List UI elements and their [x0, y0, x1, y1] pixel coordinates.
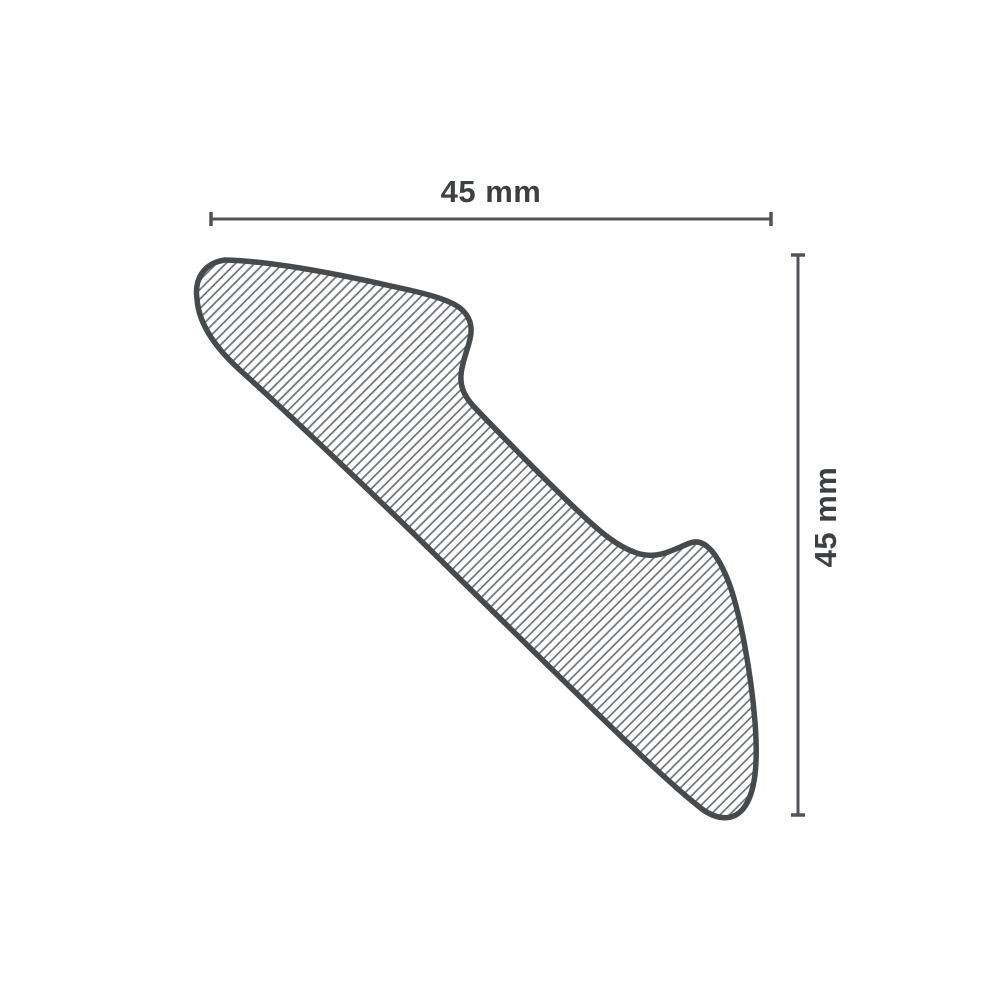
diagram-canvas: 45 mm 45 mm	[0, 0, 1000, 1000]
horizontal-dimension-line	[211, 212, 771, 226]
height-dimension-label: 45 mm	[808, 467, 844, 568]
width-dimension-label: 45 mm	[441, 174, 542, 210]
profile-cross-section-drawing	[0, 0, 1000, 1000]
vertical-dimension-line	[791, 255, 805, 815]
profile-shape	[196, 260, 756, 818]
